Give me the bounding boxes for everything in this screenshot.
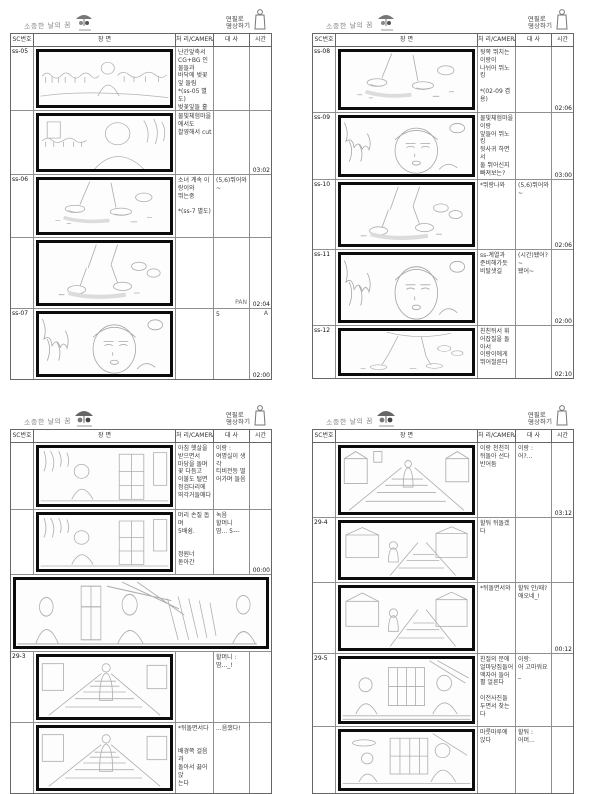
scene-number: ss-09 <box>313 113 336 179</box>
camera-notes: 물빛체험마을에서도 촬영해서 cut <box>176 111 214 174</box>
timecode: 02:00 <box>555 318 572 325</box>
sketch-porch-scene-2 <box>338 729 475 791</box>
sketch-wide-room-panorama <box>13 577 269 649</box>
col-sc-label: SC번호 <box>313 34 336 46</box>
camera-notes: *뒤돌면서와 <box>478 583 516 653</box>
camera-notes: 아침 햇살을 받으면서 마당을 돌며 꽃 다듬고 이불도 털면 정검다리에 뙤각… <box>176 443 214 509</box>
scene-number: 29-5 <box>313 654 336 726</box>
dialog-notes: (5,6)뛰어와~ <box>214 175 250 237</box>
col-camera-label: 처 리/CAMERA <box>478 34 516 46</box>
scene-number <box>313 727 336 793</box>
col-camera-label: 처 리/CAMERA <box>478 430 516 442</box>
dialog-notes: 이랑 : 어?... <box>516 443 552 517</box>
scene-number <box>11 111 34 174</box>
camera-notes: 물빛체험마을 이랑 앞들어 뛰노킹 뒷사귀 하면서 둘 뛰어신지 빠져보는? *… <box>478 113 516 179</box>
dialog-notes <box>516 326 552 378</box>
scene-number <box>11 443 34 509</box>
scene-number: ss-06 <box>11 175 34 237</box>
storyboard-row: 29-5 친절의 문에 얼마당집들어 액자어 들어 펼 얼른다 이전사진들 두면… <box>313 654 573 727</box>
camera-notes: 소녀 계속 이랑이와 뛰는중 *(ss-7 별도) <box>176 175 214 237</box>
sketch-street-figure-2 <box>338 585 475 651</box>
storyboard-table: SC번호 장 면 처 리/CAMERA 대 사 시간 이랑 천천히 뒤돌아 선다… <box>312 429 574 794</box>
sketch-girl-face-closeup-2 <box>338 252 475 323</box>
film-title: 소중한 날의 꿈 <box>24 20 71 32</box>
person-doodle-icon <box>554 9 570 31</box>
scene-number: ss-07 <box>11 309 34 379</box>
storyboard-row: PAN 02:04 <box>11 238 271 309</box>
col-time-label: 시간 <box>250 430 271 442</box>
sketch-porch-scene <box>338 656 475 724</box>
page-header: 소중한 날의 꿈 연필로 명상하기 <box>10 404 272 428</box>
storyboard-row: ss-07 5 A02:00 <box>11 309 271 379</box>
camera-notes: 이랑 천천히 뒤돌아 선다 반어둠 <box>478 443 516 517</box>
film-title: 소중한 날의 꿈 <box>326 416 373 428</box>
umbrella-icon <box>375 407 397 427</box>
studio-logo: 연필로 명상하기 <box>226 405 268 427</box>
camera-notes: 친친뒤서 휘어잡질을 돌아서 이랑이에게 뛰어절른다 <box>478 326 516 378</box>
col-sc-label: SC번호 <box>11 34 34 46</box>
camera-notes: 할둬 뒤돌겠다 <box>478 518 516 582</box>
page-header: 소중한 날의 꿈 연필로 명상하기 <box>312 404 574 428</box>
scene-number: ss-11 <box>313 250 336 325</box>
col-scene-label: 장 면 <box>336 34 478 46</box>
sketch-railway-figure-2 <box>36 725 173 791</box>
storyboard-row: *뒤돌면서다 배경쪽 걸음과 돌아서 끓어앉 는다 ...음쟀다! <box>11 723 271 793</box>
dialog-notes <box>214 47 250 110</box>
camera-notes: 머리 손질 돕며 5배쉼. 정원너 돋아간 <box>176 510 214 574</box>
sketch-girl-face-closeup <box>36 311 173 377</box>
storyboard-row: *뒤돌면서와 할둬 안/때?애오네_! 00:12 <box>313 583 573 654</box>
storyboard-table: SC번호 장 면 처 리/CAMERA 대 사 시간 ss-08 뒷쪽 뛰치는 … <box>312 33 574 379</box>
table-header: SC번호 장 면 처 리/CAMERA 대 사 시간 <box>11 430 271 443</box>
umbrella-icon <box>73 407 95 427</box>
camera-notes <box>176 309 214 379</box>
film-logo: 소중한 날의 꿈 <box>24 11 95 31</box>
film-logo: 소중한 날의 꿈 <box>24 407 95 427</box>
timecode: 00:12 <box>555 646 572 653</box>
table-header: SC번호 장 면 처 리/CAMERA 대 사 시간 <box>11 34 271 47</box>
person-doodle-icon <box>554 405 570 427</box>
studio-logo: 연필로 명상하기 <box>226 9 268 31</box>
storyboard-row: 머리 손질 돕며 5배쉼. 정원너 돋아간 녹음 할머니 땀... 5--- 0… <box>11 510 271 575</box>
col-dialog-label: 대 사 <box>516 34 552 46</box>
film-title: 소중한 날의 꿈 <box>326 20 373 32</box>
timecode: 02:04 <box>253 301 270 308</box>
storyboard-table: SC번호 장 면 처 리/CAMERA 대 사 시간 아침 햇살을 받으면서 마… <box>10 429 272 794</box>
sketch-crowd-waterfront <box>36 49 173 108</box>
camera-notes: *뒤돌면서다 배경쪽 걸음과 돌아서 끓어앉 는다 <box>176 723 214 793</box>
dialog-notes: 이랑: 어 고마워요_ <box>516 654 552 726</box>
umbrella-icon <box>375 11 397 31</box>
sketch-running-feet-2 <box>36 240 173 306</box>
umbrella-icon <box>73 11 95 31</box>
storyboard-row: ss-05 난간앞축서 CG+BG 인물들과 바닥에 벚꽃잎 들림 *(ss-0… <box>11 47 271 111</box>
film-logo: 소중한 날의 꿈 <box>326 407 397 427</box>
timecode: 02:06 <box>555 242 572 249</box>
film-title: 소중한 날의 꿈 <box>24 416 71 428</box>
sketch-house-window-2 <box>36 512 173 572</box>
dialog-notes <box>516 113 552 179</box>
scene-number: ss-12 <box>313 326 336 378</box>
dialog-notes: 5 <box>214 309 250 379</box>
dialog-notes: 할둬 안/때?애오네_! <box>516 583 552 653</box>
camera-notes: 친절의 문에 얼마당집들어 액자어 들어 펼 얼른다 이전사진들 두면서 찾는다 <box>478 654 516 726</box>
scene-number: 29-3 <box>11 652 34 722</box>
dialog-notes: ...음쟀다! <box>214 723 250 793</box>
timecode: 03:00 <box>555 172 572 179</box>
scene-number <box>11 510 34 574</box>
dialog-notes <box>214 111 250 174</box>
storyboard-row: ss-10 *뛰랑나와 (5,6)뛰어와~ 02:06 <box>313 180 573 250</box>
col-scene-label: 장 면 <box>34 430 176 442</box>
col-time-label: 시간 <box>250 34 271 46</box>
camera-notes: 마룻마루에 앉다 <box>478 727 516 793</box>
table-header: SC번호 장 면 처 리/CAMERA 대 사 시간 <box>313 34 573 47</box>
dialog-notes: 이랑 : 여명실이 생각 티비전등 떨어가며 들음 <box>214 443 250 509</box>
sketch-railway-figure <box>36 654 173 720</box>
storyboard-page-2: 소중한 날의 꿈 연필로 명상하기 SC번호 장 면 처 리/CAMERA 대 … <box>312 8 574 379</box>
col-time-label: 시간 <box>552 430 573 442</box>
timecode: 03:02 <box>253 167 270 174</box>
storyboard-row: ss-11 ss-계열과 준비해가듯 비탈샛길 (시간)됐어?~ 됐어~ 02:… <box>313 250 573 326</box>
scene-number <box>11 723 34 793</box>
dialog-notes <box>516 47 552 112</box>
sketch-running-feet <box>338 49 475 110</box>
timecode: 03:12 <box>555 510 572 517</box>
storyboard-row: ss-06 소녀 계속 이랑이와 뛰는중 *(ss-7 별도) (5,6)뛰어와… <box>11 175 271 238</box>
scene-number <box>313 583 336 653</box>
sketch-girl-face-closeup <box>338 115 475 177</box>
storyboard-row: ss-09 물빛체험마을 이랑 앞들어 뛰노킹 뒷사귀 하면서 둘 뛰어신지 빠… <box>313 113 573 180</box>
scene-number: ss-08 <box>313 47 336 112</box>
storyboard-page-3: 소중한 날의 꿈 연필로 명상하기 SC번호 장 면 처 리/CAMERA 대 … <box>10 404 272 794</box>
storyboard-row: 마룻마루에 앉다 할둬 : 어머... <box>313 727 573 793</box>
studio-logo: 연필로 명상하기 <box>528 405 570 427</box>
film-logo: 소중한 날의 꿈 <box>326 11 397 31</box>
storyboard-row: 이랑 천천히 뒤돌아 선다 반어둠 이랑 : 어?... 03:12 <box>313 443 573 518</box>
col-time-label: 시간 <box>552 34 573 46</box>
sketch-runner-back-crowd <box>36 113 173 172</box>
col-camera-label: 처 리/CAMERA <box>176 34 214 46</box>
storyboard-row: ss-12 친친뒤서 휘어잡질을 돌아서 이랑이에게 뛰어절른다 02:10 <box>313 326 573 378</box>
storyboard-page-4: 소중한 날의 꿈 연필로 명상하기 SC번호 장 면 처 리/CAMERA 대 … <box>312 404 574 794</box>
scene-number: ss-05 <box>11 47 34 110</box>
camera-notes: ss-계열과 준비해가듯 비탈샛길 <box>478 250 516 325</box>
col-dialog-label: 대 사 <box>516 430 552 442</box>
storyboard-row-wide <box>11 575 271 652</box>
studio-logo: 연필로 명상하기 <box>528 9 570 31</box>
dialog-notes: (5,6)뛰어와~ <box>516 180 552 249</box>
col-sc-label: SC번호 <box>11 430 34 442</box>
storyboard-page-1: 소중한 날의 꿈 연필로 명상하기 SC번호 장 면 처 리/CAMERA 대 … <box>10 8 272 380</box>
storyboard-table: SC번호 장 면 처 리/CAMERA 대 사 시간 ss-05 난간앞축서 C… <box>10 33 272 380</box>
timecode: 00:00 <box>253 567 270 574</box>
page-header: 소중한 날의 꿈 연필로 명상하기 <box>312 8 574 32</box>
storyboard-row: 29-3 할머니 : 땀..._! <box>11 652 271 723</box>
dialog-notes: PAN <box>214 238 250 308</box>
col-sc-label: SC번호 <box>313 430 336 442</box>
person-doodle-icon <box>252 405 268 427</box>
sketch-street-figure <box>338 520 475 580</box>
scene-number: ss-10 <box>313 180 336 249</box>
sketch-running-legs-2 <box>338 328 475 376</box>
scene-number <box>11 238 34 308</box>
page-header: 소중한 날의 꿈 연필로 명상하기 <box>10 8 272 32</box>
sketch-house-window <box>36 445 173 507</box>
camera-notes: 난간앞축서 CG+BG 인물들과 바닥에 벚꽃잎 들림 *(ss-05 별도) … <box>176 47 214 110</box>
studio-name-line2: 명상하기 <box>528 419 552 427</box>
camera-notes: 뒷쪽 뛰치는 이랑이 나뉘어 뛰노킹 *(02-09 겸용) <box>478 47 516 112</box>
storyboard-row: 29-4 할둬 뒤돌겠다 <box>313 518 573 583</box>
col-scene-label: 장 면 <box>336 430 478 442</box>
dialog-notes: 할둬 : 어머... <box>516 727 552 793</box>
dialog-notes <box>516 518 552 582</box>
scene-number <box>313 443 336 517</box>
studio-name-line2: 명상하기 <box>528 23 552 31</box>
storyboard-row: 물빛체험마을에서도 촬영해서 cut 03:02 <box>11 111 271 175</box>
col-scene-label: 장 면 <box>34 34 176 46</box>
dialog-notes: 할머니 : 땀..._! <box>214 652 250 722</box>
person-doodle-icon <box>252 9 268 31</box>
row-mark: A <box>264 310 268 317</box>
sketch-running-feet <box>36 177 173 235</box>
col-dialog-label: 대 사 <box>214 34 250 46</box>
storyboard-row: ss-08 뒷쪽 뛰치는 이랑이 나뉘어 뛰노킹 *(02-09 겸용) 02:… <box>313 47 573 113</box>
timecode: 02:06 <box>555 105 572 112</box>
scene-number: 29-4 <box>313 518 336 582</box>
sketch-running-legs <box>338 182 475 247</box>
timecode: 02:10 <box>555 371 572 378</box>
camera-notes <box>176 652 214 722</box>
camera-notes: *뛰랑나와 <box>478 180 516 249</box>
studio-name-line2: 명상하기 <box>226 419 250 427</box>
dialog-notes: (시간)됐어?~ 됐어~ <box>516 250 552 325</box>
storyboard-row: 아침 햇살을 받으면서 마당을 돌며 꽃 다듬고 이불도 털면 정검다리에 뙤각… <box>11 443 271 510</box>
timecode: 02:00 <box>253 372 270 379</box>
sketch-railway-street <box>338 445 475 515</box>
studio-name-line2: 명상하기 <box>226 23 250 31</box>
camera-notes <box>176 238 214 308</box>
table-header: SC번호 장 면 처 리/CAMERA 대 사 시간 <box>313 430 573 443</box>
col-camera-label: 처 리/CAMERA <box>176 430 214 442</box>
col-dialog-label: 대 사 <box>214 430 250 442</box>
dialog-notes: 녹음 할머니 땀... 5--- <box>214 510 250 574</box>
